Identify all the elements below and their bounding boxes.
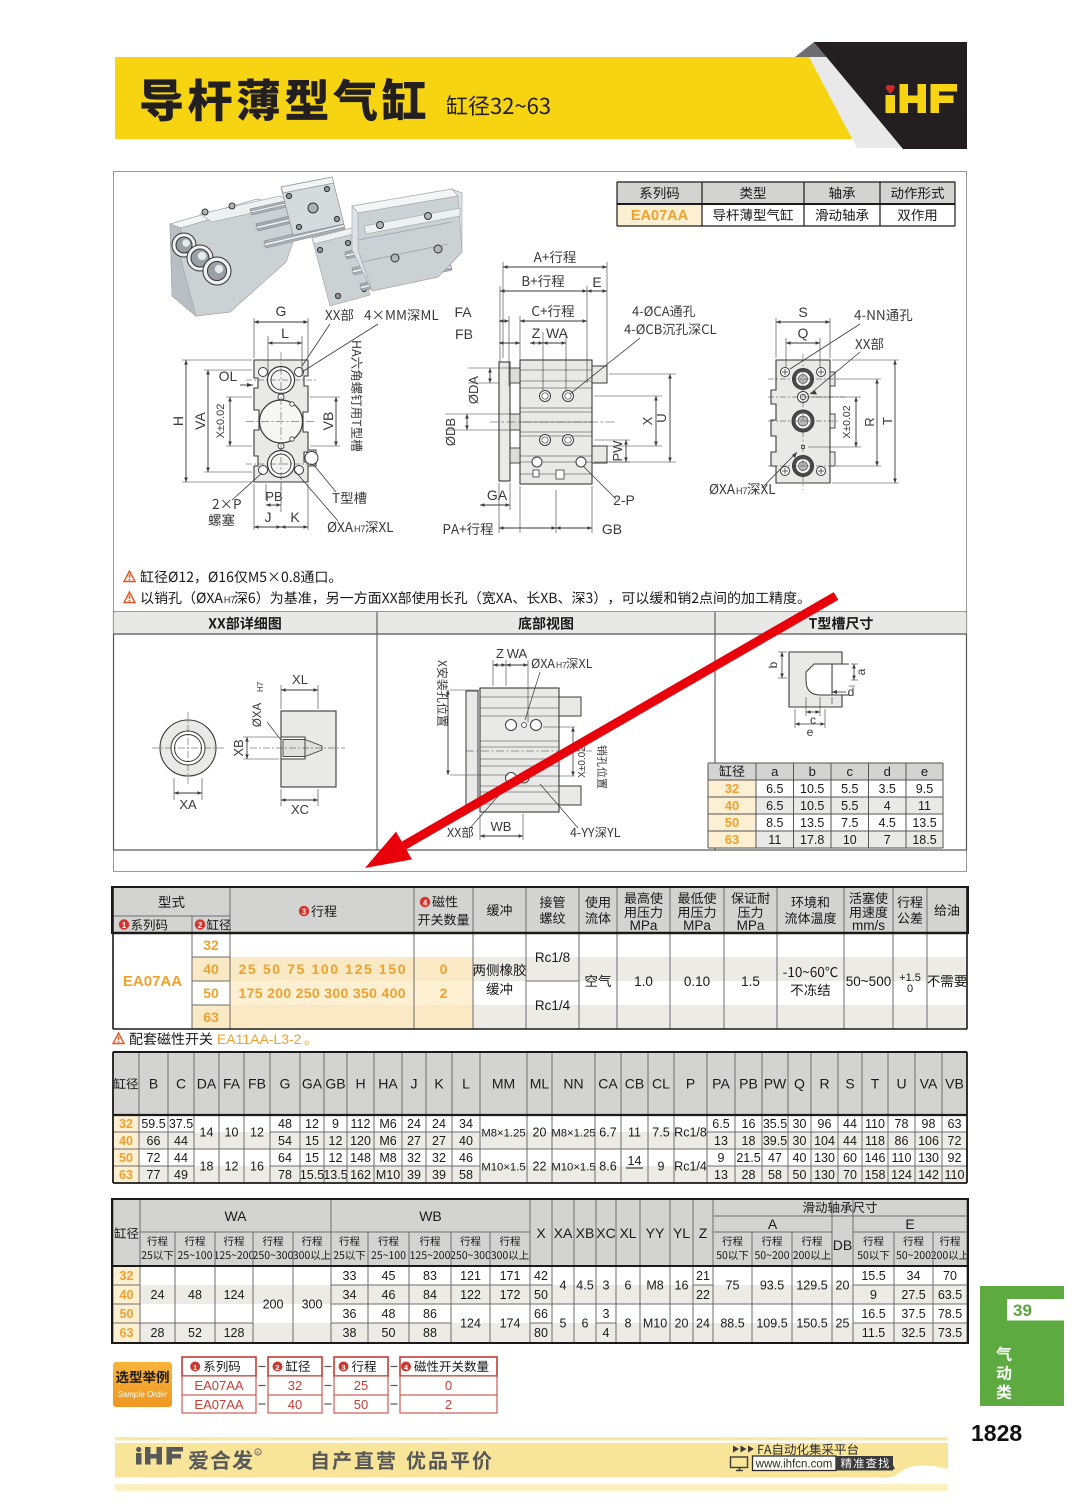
svg-text:Rc1/8: Rc1/8: [535, 950, 570, 965]
svg-text:GB: GB: [325, 1076, 345, 1092]
svg-text:ØDB: ØDB: [443, 418, 458, 446]
svg-text:88: 88: [423, 1326, 437, 1340]
svg-text:93.5: 93.5: [760, 1279, 784, 1293]
svg-text:10.5: 10.5: [800, 799, 824, 813]
svg-text:40: 40: [793, 1151, 807, 1165]
svg-text:XC: XC: [596, 1225, 615, 1241]
svg-text:9: 9: [658, 1160, 665, 1174]
svg-text:18.5: 18.5: [912, 833, 936, 847]
svg-text:3: 3: [603, 1279, 610, 1293]
svg-text:16: 16: [742, 1117, 756, 1131]
svg-text:c: c: [847, 764, 854, 779]
svg-text:8.6: 8.6: [599, 1160, 616, 1174]
svg-text:DB: DB: [833, 1237, 852, 1253]
svg-text:Q: Q: [798, 325, 809, 341]
svg-text:66: 66: [534, 1307, 548, 1321]
svg-text:4: 4: [560, 1279, 567, 1293]
svg-text:b: b: [809, 764, 816, 779]
svg-text:32: 32: [119, 1117, 133, 1131]
svg-text:48: 48: [278, 1117, 292, 1131]
svg-text:40: 40: [119, 1134, 133, 1148]
svg-text:124: 124: [891, 1168, 912, 1182]
svg-text:46: 46: [382, 1288, 396, 1302]
svg-text:88.5: 88.5: [720, 1317, 744, 1331]
svg-text:25: 25: [354, 1378, 368, 1393]
svg-text:146: 146: [865, 1151, 886, 1165]
svg-text:H7: H7: [556, 660, 567, 670]
svg-text:ØXA: ØXA: [252, 703, 264, 728]
svg-text:44: 44: [843, 1117, 857, 1131]
svg-text:XB: XB: [576, 1225, 595, 1241]
svg-text:22: 22: [696, 1288, 710, 1302]
svg-text:Rc1/4: Rc1/4: [535, 998, 571, 1013]
svg-text:Z: Z: [532, 325, 541, 341]
svg-text:118: 118: [865, 1134, 885, 1148]
svg-text:39.5: 39.5: [763, 1134, 787, 1148]
svg-text:44: 44: [174, 1151, 188, 1165]
svg-text:P: P: [686, 1076, 695, 1092]
svg-text:0.10: 0.10: [684, 974, 710, 989]
svg-text:C: C: [176, 1076, 186, 1092]
svg-text:110: 110: [865, 1117, 885, 1131]
svg-text:EA07AA: EA07AA: [123, 973, 182, 990]
svg-text:25: 25: [836, 1317, 850, 1331]
svg-text:VA: VA: [192, 412, 208, 430]
svg-text:X: X: [640, 416, 655, 425]
svg-text:Z: Z: [699, 1225, 708, 1241]
svg-text:R: R: [862, 417, 877, 426]
svg-text:171: 171: [500, 1269, 521, 1283]
svg-text:MM: MM: [492, 1076, 515, 1092]
svg-text:EA07AA: EA07AA: [631, 208, 689, 224]
svg-text:32: 32: [432, 1151, 446, 1165]
svg-text:13.5: 13.5: [323, 1168, 347, 1182]
svg-text:16.5: 16.5: [861, 1307, 885, 1321]
svg-text:11: 11: [768, 833, 781, 847]
svg-text:39: 39: [407, 1168, 421, 1182]
svg-text:11: 11: [918, 799, 931, 813]
svg-text:2: 2: [440, 985, 448, 1001]
svg-text:S: S: [798, 304, 807, 320]
svg-text:U: U: [654, 413, 669, 422]
svg-text:T: T: [871, 1076, 880, 1092]
svg-text:G: G: [280, 1076, 291, 1092]
svg-text:XB: XB: [231, 739, 246, 756]
svg-text:5.5: 5.5: [841, 782, 858, 796]
svg-text:3: 3: [341, 1363, 345, 1372]
svg-text:63: 63: [119, 1168, 133, 1182]
svg-text:6.5: 6.5: [766, 799, 783, 813]
svg-text:E: E: [592, 274, 601, 290]
svg-text:1828: 1828: [971, 1420, 1022, 1446]
svg-text:M6: M6: [379, 1117, 396, 1131]
svg-text:98: 98: [922, 1117, 936, 1131]
svg-text:MPa: MPa: [737, 918, 765, 933]
svg-text:10: 10: [843, 833, 857, 847]
svg-text:27: 27: [432, 1134, 446, 1148]
svg-text:FA: FA: [223, 1076, 241, 1092]
svg-text:66: 66: [147, 1134, 161, 1148]
svg-text:G: G: [276, 303, 287, 319]
svg-text:OL: OL: [219, 368, 238, 384]
svg-text:WB: WB: [491, 819, 512, 834]
svg-text:6.7: 6.7: [599, 1126, 616, 1140]
svg-text:39: 39: [1013, 1301, 1032, 1320]
svg-text:e: e: [807, 725, 814, 739]
svg-text:50: 50: [725, 815, 739, 830]
svg-text:148: 148: [350, 1151, 371, 1165]
svg-text:49: 49: [174, 1168, 188, 1182]
svg-text:110: 110: [945, 1168, 965, 1182]
svg-text:FB: FB: [455, 326, 473, 342]
svg-text:83: 83: [423, 1269, 437, 1283]
svg-text:L: L: [462, 1076, 470, 1092]
svg-text:175 200 250 300 350 400: 175 200 250 300 350 400: [239, 985, 406, 1001]
svg-text:129.5: 129.5: [796, 1279, 827, 1293]
svg-text:NN: NN: [563, 1076, 583, 1092]
svg-text:50: 50: [534, 1288, 548, 1302]
svg-text:15: 15: [305, 1134, 319, 1148]
svg-text:ML: ML: [530, 1076, 550, 1092]
svg-text:4: 4: [884, 799, 891, 813]
svg-text:U: U: [896, 1076, 906, 1092]
svg-text:PW: PW: [610, 440, 625, 462]
svg-text:86: 86: [895, 1134, 909, 1148]
svg-text:50: 50: [120, 1307, 134, 1321]
svg-text:28: 28: [151, 1326, 165, 1340]
svg-text:9: 9: [332, 1117, 339, 1131]
svg-text:15.5: 15.5: [300, 1168, 324, 1182]
svg-text:CB: CB: [625, 1076, 644, 1092]
svg-text:A: A: [768, 1216, 778, 1232]
svg-text:63: 63: [203, 1009, 219, 1025]
svg-text:54: 54: [278, 1134, 292, 1148]
svg-text:9: 9: [870, 1288, 877, 1302]
svg-text:DA: DA: [197, 1076, 217, 1092]
svg-text:130: 130: [918, 1151, 939, 1165]
svg-text:K: K: [290, 509, 300, 525]
svg-text:e: e: [921, 764, 928, 779]
svg-text:PB: PB: [739, 1076, 758, 1092]
svg-text:ØDA: ØDA: [466, 376, 481, 405]
svg-text:X±0.02: X±0.02: [841, 405, 853, 438]
svg-text:L: L: [281, 325, 289, 341]
svg-text:25 50 75 100 125 150: 25 50 75 100 125 150: [239, 961, 406, 977]
svg-text:104: 104: [814, 1134, 835, 1148]
svg-text:72: 72: [147, 1151, 161, 1165]
svg-text:VB: VB: [945, 1076, 964, 1092]
svg-text:M10: M10: [376, 1168, 400, 1182]
svg-text:CA: CA: [598, 1076, 618, 1092]
svg-text:20: 20: [836, 1279, 850, 1293]
svg-text:7: 7: [884, 833, 891, 847]
svg-text:46: 46: [459, 1151, 473, 1165]
svg-text:33: 33: [343, 1269, 357, 1283]
svg-text:X±0.02: X±0.02: [577, 746, 588, 778]
svg-text:H7: H7: [224, 595, 236, 605]
svg-text:16: 16: [675, 1279, 689, 1293]
svg-text:3.5: 3.5: [879, 782, 896, 796]
svg-text:63: 63: [120, 1326, 134, 1340]
svg-text:200: 200: [263, 1298, 284, 1312]
svg-text:48: 48: [382, 1307, 396, 1321]
svg-text:14: 14: [200, 1126, 214, 1140]
svg-text:142: 142: [918, 1168, 939, 1182]
svg-text:174: 174: [500, 1317, 521, 1331]
svg-text:K: K: [434, 1076, 444, 1092]
svg-text:M10: M10: [643, 1317, 667, 1331]
svg-text:M8×1.25: M8×1.25: [551, 1128, 595, 1140]
svg-text:121: 121: [460, 1269, 481, 1283]
svg-text:H: H: [355, 1076, 365, 1092]
svg-text:84: 84: [423, 1288, 437, 1302]
svg-text:24: 24: [432, 1117, 446, 1131]
svg-text:6: 6: [625, 1279, 632, 1293]
svg-text:34: 34: [343, 1288, 357, 1302]
svg-text:50~500: 50~500: [846, 974, 891, 989]
svg-text:27.5: 27.5: [901, 1288, 925, 1302]
svg-text:162: 162: [350, 1168, 371, 1182]
svg-text:38: 38: [343, 1326, 357, 1340]
svg-text:42: 42: [534, 1269, 548, 1283]
svg-text:8.5: 8.5: [766, 816, 783, 830]
svg-text:130: 130: [814, 1168, 835, 1182]
svg-text:78.5: 78.5: [938, 1307, 962, 1321]
svg-text:21.5: 21.5: [736, 1151, 760, 1165]
svg-text:H7: H7: [354, 524, 366, 534]
svg-text:28: 28: [742, 1168, 756, 1182]
svg-text:109.5: 109.5: [756, 1317, 787, 1331]
svg-text:M8: M8: [646, 1279, 663, 1293]
svg-text:86: 86: [423, 1307, 437, 1321]
svg-text:4: 4: [423, 899, 428, 908]
svg-text:78: 78: [895, 1117, 909, 1131]
svg-text:78: 78: [278, 1168, 292, 1182]
svg-text:32.5: 32.5: [901, 1326, 925, 1340]
svg-text:124: 124: [460, 1317, 481, 1331]
svg-text:XA: XA: [554, 1225, 573, 1241]
svg-text:9: 9: [718, 1151, 725, 1165]
svg-text:32: 32: [203, 937, 219, 953]
svg-text:50: 50: [119, 1151, 133, 1165]
svg-text:106: 106: [918, 1134, 939, 1148]
svg-text:5: 5: [560, 1317, 567, 1331]
svg-text:48: 48: [188, 1288, 202, 1302]
svg-text:13: 13: [714, 1134, 728, 1148]
svg-text:6.5: 6.5: [712, 1117, 729, 1131]
svg-text:M10×1.5: M10×1.5: [481, 1162, 525, 1174]
svg-text:WB: WB: [419, 1208, 442, 1224]
svg-text:12: 12: [250, 1126, 264, 1140]
svg-text:EA11AA-L3-2: EA11AA-L3-2: [217, 1031, 302, 1047]
svg-text:6: 6: [582, 1317, 589, 1331]
svg-text:37.5: 37.5: [169, 1117, 193, 1131]
svg-text:150.5: 150.5: [796, 1317, 827, 1331]
svg-text:58: 58: [768, 1168, 782, 1182]
svg-text:PA: PA: [712, 1076, 730, 1092]
svg-text:FA: FA: [454, 304, 472, 320]
svg-text:b: b: [766, 661, 780, 668]
svg-text:FB: FB: [248, 1076, 266, 1092]
svg-text:50: 50: [354, 1397, 368, 1412]
svg-text:XC: XC: [291, 802, 309, 817]
svg-text:12: 12: [225, 1160, 239, 1174]
svg-text:XL: XL: [292, 672, 308, 687]
svg-text:24: 24: [407, 1117, 421, 1131]
svg-text:4.5: 4.5: [879, 816, 896, 830]
svg-text:24: 24: [696, 1317, 710, 1331]
svg-text:10.5: 10.5: [800, 782, 824, 796]
svg-text:2: 2: [275, 1363, 279, 1372]
svg-text:Rc1/8: Rc1/8: [674, 1126, 707, 1140]
svg-text:WA: WA: [507, 646, 528, 661]
svg-text:47: 47: [768, 1151, 782, 1165]
svg-text:PW: PW: [764, 1076, 787, 1092]
svg-text:H7: H7: [736, 486, 748, 496]
svg-text:GB: GB: [602, 521, 622, 537]
svg-text:YY: YY: [646, 1225, 665, 1241]
svg-text:4.5: 4.5: [576, 1279, 593, 1293]
svg-text:9.5: 9.5: [916, 782, 933, 796]
svg-text:1.0: 1.0: [634, 974, 653, 989]
svg-text:MPa: MPa: [683, 918, 711, 933]
svg-text:VA: VA: [920, 1076, 938, 1092]
svg-text:15.5: 15.5: [861, 1269, 885, 1283]
svg-text:45: 45: [382, 1269, 396, 1283]
svg-text:22: 22: [533, 1160, 547, 1174]
svg-text:12: 12: [329, 1134, 343, 1148]
svg-text:YL: YL: [673, 1225, 690, 1241]
svg-text:63: 63: [725, 832, 739, 847]
svg-text:59.5: 59.5: [141, 1117, 165, 1131]
svg-text:12: 12: [329, 1151, 343, 1165]
svg-text:24: 24: [151, 1288, 165, 1302]
svg-text:4: 4: [603, 1326, 610, 1340]
svg-text:13: 13: [714, 1168, 728, 1182]
svg-text:172: 172: [500, 1288, 521, 1302]
svg-text:18: 18: [742, 1134, 756, 1148]
svg-text:X: X: [536, 1225, 546, 1241]
svg-text:13.5: 13.5: [800, 816, 824, 830]
svg-text:2-P: 2-P: [613, 492, 635, 508]
svg-text:12: 12: [305, 1117, 319, 1131]
svg-text:14: 14: [628, 1154, 642, 1168]
svg-text:CL: CL: [652, 1076, 670, 1092]
svg-text:XA: XA: [179, 797, 197, 812]
svg-text:17.8: 17.8: [800, 833, 824, 847]
svg-text:158: 158: [865, 1168, 886, 1182]
svg-text:www.ihfcn.com: www.ihfcn.com: [755, 1459, 833, 1471]
svg-text:10: 10: [225, 1126, 239, 1140]
svg-text:300: 300: [302, 1298, 323, 1312]
svg-text:18: 18: [200, 1160, 214, 1174]
svg-text:R: R: [819, 1076, 829, 1092]
svg-text:44: 44: [843, 1134, 857, 1148]
svg-text:44: 44: [174, 1134, 188, 1148]
svg-text:39: 39: [432, 1168, 446, 1182]
svg-text:3: 3: [302, 908, 307, 917]
svg-text:20: 20: [675, 1317, 689, 1331]
svg-text:2: 2: [198, 921, 203, 930]
svg-text:52: 52: [188, 1326, 202, 1340]
svg-text:WA: WA: [546, 325, 569, 341]
svg-text:M10×1.5: M10×1.5: [551, 1162, 595, 1174]
svg-text:6.5: 6.5: [766, 782, 783, 796]
svg-text:B: B: [149, 1076, 158, 1092]
svg-text:d: d: [848, 685, 855, 699]
svg-text:d: d: [884, 764, 891, 779]
svg-text:Q: Q: [794, 1076, 805, 1092]
svg-text:80: 80: [534, 1326, 548, 1340]
svg-text:5.5: 5.5: [841, 799, 858, 813]
svg-text:X±0.02: X±0.02: [215, 404, 227, 439]
svg-text:2: 2: [445, 1397, 452, 1412]
svg-text:a: a: [854, 668, 868, 675]
svg-text:40: 40: [203, 961, 219, 977]
svg-text:M8: M8: [379, 1151, 396, 1165]
svg-text:a: a: [771, 764, 779, 779]
svg-text:32: 32: [725, 781, 739, 796]
svg-text:70: 70: [943, 1269, 957, 1283]
svg-text:M6: M6: [379, 1134, 396, 1148]
svg-text:3: 3: [603, 1307, 610, 1321]
svg-text:Sample Order: Sample Order: [118, 1390, 168, 1399]
svg-text:S: S: [845, 1076, 854, 1092]
svg-text:63: 63: [948, 1117, 962, 1131]
svg-text:VB: VB: [320, 412, 336, 431]
svg-text:H: H: [170, 416, 186, 426]
svg-text:11: 11: [628, 1126, 641, 1140]
svg-text:7.5: 7.5: [841, 816, 858, 830]
svg-text:32: 32: [120, 1269, 134, 1283]
svg-text:34: 34: [459, 1117, 473, 1131]
svg-text:15: 15: [305, 1151, 319, 1165]
svg-text:110: 110: [892, 1151, 912, 1165]
svg-text:30: 30: [793, 1134, 807, 1148]
svg-text:20: 20: [533, 1126, 547, 1140]
svg-text:MPa: MPa: [630, 918, 658, 933]
svg-text:58: 58: [459, 1168, 473, 1182]
svg-text:J: J: [411, 1076, 418, 1092]
svg-text:1: 1: [193, 1363, 197, 1372]
svg-text:60: 60: [843, 1151, 857, 1165]
svg-text:35.5: 35.5: [763, 1117, 787, 1131]
svg-text:122: 122: [460, 1288, 481, 1302]
svg-text:HA: HA: [378, 1076, 398, 1092]
svg-text:T: T: [880, 417, 895, 425]
svg-text:21: 21: [696, 1269, 710, 1283]
svg-text:1.5: 1.5: [741, 974, 760, 989]
svg-text:112: 112: [351, 1117, 371, 1131]
svg-text:30: 30: [793, 1117, 807, 1131]
svg-text:36: 36: [343, 1307, 357, 1321]
svg-text:0: 0: [440, 961, 448, 977]
svg-text:16: 16: [250, 1160, 264, 1174]
svg-text:96: 96: [818, 1117, 832, 1131]
svg-text:40: 40: [459, 1134, 473, 1148]
svg-text:mm/s: mm/s: [852, 918, 885, 933]
svg-text:1: 1: [122, 921, 127, 930]
svg-text:13.5: 13.5: [912, 816, 936, 830]
svg-text:H7: H7: [256, 681, 265, 692]
svg-text:32: 32: [407, 1151, 421, 1165]
svg-text:120: 120: [350, 1134, 371, 1148]
svg-text:70: 70: [843, 1168, 857, 1182]
svg-text:XL: XL: [619, 1225, 636, 1241]
svg-text:37.5: 37.5: [901, 1307, 925, 1321]
svg-text:73.5: 73.5: [938, 1326, 962, 1340]
svg-text:63.5: 63.5: [938, 1288, 962, 1302]
